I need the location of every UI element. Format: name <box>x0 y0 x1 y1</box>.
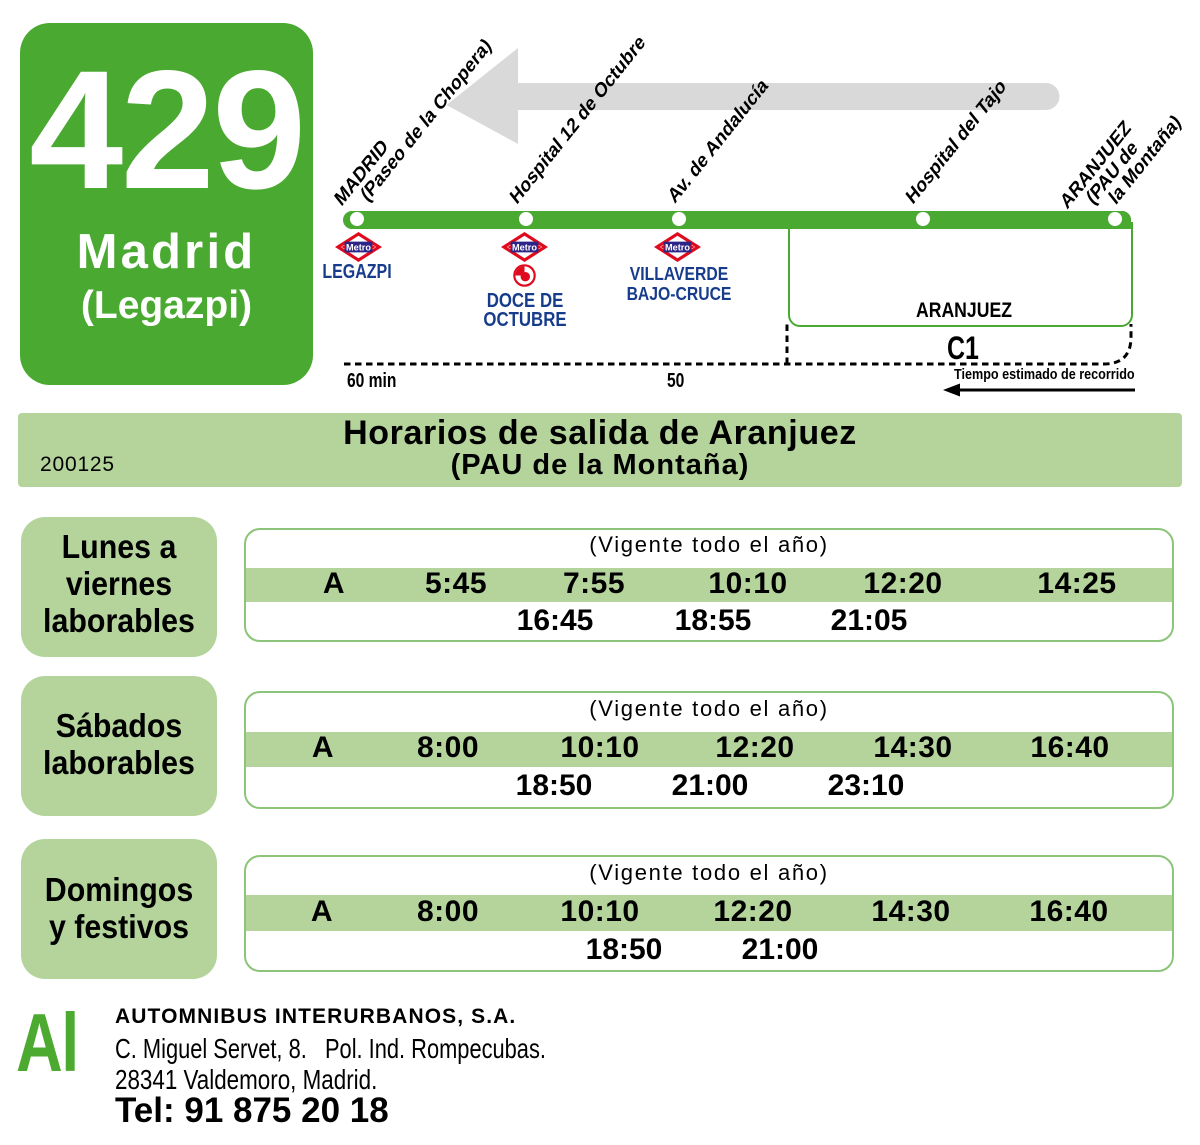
svg-text:Metro: Metro <box>665 243 690 253</box>
svg-text:Metro: Metro <box>346 243 371 253</box>
svg-text:Metro: Metro <box>512 243 537 253</box>
